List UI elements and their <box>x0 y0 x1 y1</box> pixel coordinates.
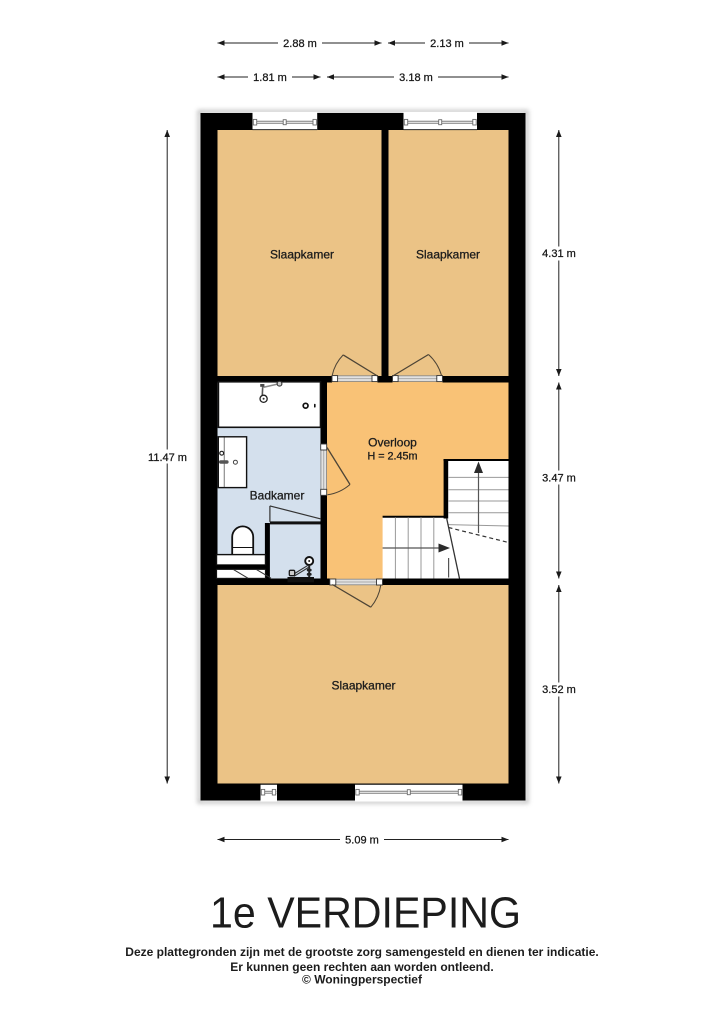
svg-text:3.47 m: 3.47 m <box>542 472 576 484</box>
svg-text:5.09 m: 5.09 m <box>345 834 379 846</box>
svg-text:© Woningperspectief: © Woningperspectief <box>302 973 423 987</box>
svg-text:Overloop: Overloop <box>368 436 417 450</box>
svg-text:3.18 m: 3.18 m <box>399 72 433 84</box>
svg-text:Slaapkamer: Slaapkamer <box>331 678 395 692</box>
svg-text:1.81 m: 1.81 m <box>253 72 287 84</box>
svg-text:3.52 m: 3.52 m <box>542 684 576 696</box>
svg-text:11.47 m: 11.47 m <box>148 452 187 464</box>
svg-text:1e VERDIEPING: 1e VERDIEPING <box>210 890 521 938</box>
svg-text:2.13 m: 2.13 m <box>430 38 464 50</box>
svg-text:H = 2.45m: H = 2.45m <box>367 450 417 462</box>
svg-text:Badkamer: Badkamer <box>250 489 305 503</box>
svg-text:Slaapkamer: Slaapkamer <box>270 247 334 261</box>
svg-text:Slaapkamer: Slaapkamer <box>416 247 480 261</box>
svg-text:4.31 m: 4.31 m <box>542 248 576 260</box>
svg-text:Deze plattegronden zijn met de: Deze plattegronden zijn met de grootste … <box>125 945 598 959</box>
svg-text:2.88 m: 2.88 m <box>283 38 317 50</box>
